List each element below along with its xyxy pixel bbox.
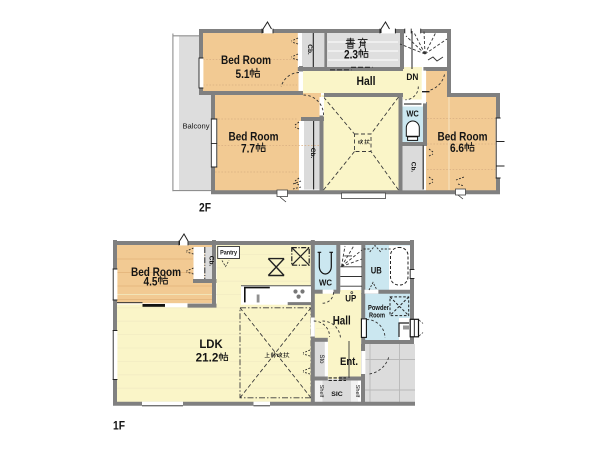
- svg-text:1F: 1F: [113, 419, 125, 433]
- svg-text:UB: UB: [371, 266, 382, 276]
- svg-text:DN: DN: [406, 72, 418, 82]
- svg-text:UP: UP: [345, 293, 356, 303]
- svg-text:Cb.: Cb.: [410, 162, 417, 173]
- svg-text:4.5: 4.5: [144, 275, 158, 289]
- svg-text:SIC: SIC: [331, 391, 343, 398]
- svg-text:WC: WC: [319, 278, 332, 288]
- svg-text:21.2: 21.2: [196, 351, 219, 365]
- svg-text:Cb.: Cb.: [309, 148, 316, 159]
- svg-text:Room: Room: [369, 311, 385, 320]
- svg-text:Sto: Sto: [318, 354, 324, 364]
- svg-text:LDK: LDK: [199, 337, 223, 351]
- svg-text:Pantry: Pantry: [220, 251, 238, 257]
- svg-text:Cb.: Cb.: [306, 44, 313, 55]
- svg-text:2F: 2F: [199, 201, 211, 215]
- svg-text:5.1: 5.1: [236, 67, 250, 81]
- svg-text:Balcony: Balcony: [183, 124, 211, 131]
- svg-text:Hall: Hall: [333, 314, 351, 328]
- svg-text:Shelf: Shelf: [354, 385, 360, 398]
- svg-text:7.7: 7.7: [241, 142, 255, 156]
- svg-text:6.6: 6.6: [450, 141, 464, 155]
- svg-text:Bed Room: Bed Room: [221, 53, 271, 67]
- svg-text:WC: WC: [406, 108, 419, 118]
- svg-text:Cb.: Cb.: [207, 256, 214, 267]
- svg-text:Ent.: Ent.: [340, 356, 358, 368]
- svg-text:Shelf: Shelf: [318, 385, 324, 398]
- svg-text:2.3: 2.3: [344, 48, 358, 62]
- svg-text:Hall: Hall: [357, 74, 376, 88]
